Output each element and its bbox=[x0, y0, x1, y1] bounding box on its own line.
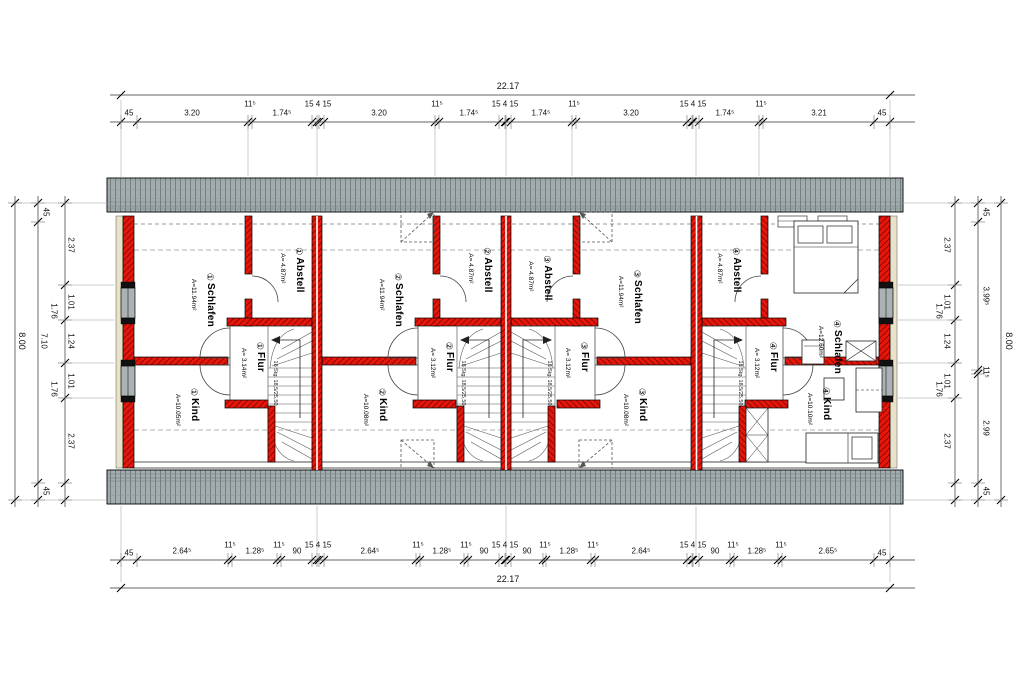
unit-number: ① bbox=[256, 342, 265, 350]
room-label-kind: ②KindA=10.08m² bbox=[359, 388, 387, 426]
room-name: Flur bbox=[579, 352, 589, 372]
dim-bottom-seg: 1.28⁵ bbox=[433, 547, 452, 556]
room-label-flur: ④FlurA= 3.12m² bbox=[750, 342, 778, 378]
room-area: A= 4.87m² bbox=[716, 253, 723, 283]
floor-plan-page: 453.2011⁵1.74⁵15 4 153.2011⁵1.74⁵15 4 15… bbox=[0, 0, 1024, 683]
room-label-schlafen: ①SchlafenA=11.94m² bbox=[187, 273, 215, 327]
dim-top-seg: 11⁵ bbox=[431, 100, 443, 109]
dim-left-inner: 1.24 bbox=[67, 333, 76, 349]
unit-number: ① bbox=[190, 388, 199, 396]
room-name: Kind bbox=[821, 397, 831, 420]
label-layer: 453.2011⁵1.74⁵15 4 153.2011⁵1.74⁵15 4 15… bbox=[0, 0, 1024, 683]
dim-right-chain: 45 bbox=[982, 208, 991, 217]
room-label-abstell: ③AbstellA= 4.87m² bbox=[524, 255, 552, 301]
dim-top-seg: 1.74⁵ bbox=[273, 109, 292, 118]
unit-number: ④ bbox=[769, 342, 778, 350]
unit-number: ④ bbox=[732, 247, 741, 255]
unit-number: ② bbox=[445, 342, 454, 350]
room-area: A=10.08m² bbox=[362, 394, 369, 426]
dim-top-seg: 15 4 15 bbox=[680, 100, 707, 109]
dim-top-seg: 15 4 15 bbox=[492, 100, 519, 109]
dim-top-seg: 1.74⁵ bbox=[532, 109, 551, 118]
dim-bottom-seg: 90 bbox=[293, 547, 302, 556]
room-label-schlafen: ③SchlafenA=11.94m² bbox=[614, 270, 642, 324]
dim-bottom-seg: 11⁵ bbox=[224, 541, 236, 550]
room-area: A= 3.12m² bbox=[753, 348, 760, 378]
dim-top-seg: 11⁵ bbox=[568, 100, 580, 109]
dim-right-inner: 2.37 bbox=[943, 237, 952, 253]
dim-bottom-seg: 11⁵ bbox=[460, 541, 472, 550]
dim-left-inner: 2.37 bbox=[67, 237, 76, 253]
dim-top-seg: 11⁵ bbox=[755, 100, 767, 109]
dim-right-offset: 1.76 bbox=[935, 381, 944, 397]
room-name: Schlafen bbox=[632, 280, 642, 324]
room-name: Schlafen bbox=[393, 283, 403, 327]
dim-bottom-seg: 1.28⁵ bbox=[748, 547, 767, 556]
dim-left-chain: 45 bbox=[42, 487, 51, 496]
dim-left-inner: 2.37 bbox=[67, 433, 76, 449]
room-name: Abstell bbox=[542, 265, 552, 300]
room-area: A=10.05m² bbox=[174, 394, 181, 426]
dim-left-offset: 1.76 bbox=[50, 381, 59, 397]
dim-right-inner: 1.01 bbox=[943, 294, 952, 310]
dim-bottom-seg: 1.28⁵ bbox=[246, 547, 265, 556]
dim-bottom-seg: 1.28⁵ bbox=[560, 547, 579, 556]
dim-top-seg: 15 4 15 bbox=[305, 100, 332, 109]
room-area: A=10.10m² bbox=[806, 393, 813, 425]
dim-left-inner: 1.01 bbox=[67, 373, 76, 389]
unit-number: ④ bbox=[822, 387, 831, 395]
dim-bottom-seg: 90 bbox=[711, 547, 720, 556]
dim-right-chain: 3.99⁵ bbox=[982, 287, 991, 306]
unit-number: ④ bbox=[833, 320, 842, 328]
dim-bottom-seg: 15 4 15 bbox=[492, 541, 519, 550]
room-name: Abstell bbox=[482, 257, 492, 292]
room-name: Kind bbox=[637, 398, 647, 421]
room-name: Flur bbox=[255, 352, 265, 372]
room-area: A= 4.87m² bbox=[467, 253, 474, 283]
room-label-kind: ①KindA=10.05m² bbox=[171, 388, 199, 426]
dim-right-chain: 45 bbox=[982, 487, 991, 496]
unit-number: ③ bbox=[633, 270, 642, 278]
dim-left-total: 8.00 bbox=[17, 332, 27, 350]
room-name: Abstell bbox=[294, 257, 304, 292]
room-name: Schlafen bbox=[832, 330, 842, 374]
room-name: Flur bbox=[444, 352, 454, 372]
dim-left-chain: 45 bbox=[42, 208, 51, 217]
dim-top-seg: 1.74⁵ bbox=[460, 109, 479, 118]
dim-right-chain: 2.99 bbox=[982, 420, 991, 436]
dim-right-chain: 11⁵ bbox=[982, 366, 991, 378]
unit-number: ③ bbox=[543, 255, 552, 263]
room-area: A= 3.14m² bbox=[240, 348, 247, 378]
unit-number: ② bbox=[483, 247, 492, 255]
room-area: A= 3.12m² bbox=[429, 348, 436, 378]
room-name: Kind bbox=[189, 398, 199, 421]
room-label-abstell: ①AbstellA= 4.87m² bbox=[276, 247, 304, 293]
dim-right-inner: 1.01 bbox=[943, 373, 952, 389]
room-label-schlafen: ④SchlafenA=12.60m² bbox=[814, 320, 842, 374]
dim-left-inner: 1.01 bbox=[67, 294, 76, 310]
unit-number: ① bbox=[295, 247, 304, 255]
dim-top-total: 22.17 bbox=[497, 81, 520, 91]
dim-right-total: 8.00 bbox=[1004, 332, 1014, 350]
dim-bottom-seg: 2.65⁵ bbox=[819, 547, 838, 556]
room-area: A= 4.87m² bbox=[279, 253, 286, 283]
room-area: A=10.08m² bbox=[622, 394, 629, 426]
room-area: A= 4.87m² bbox=[527, 261, 534, 291]
room-label-flur: ①FlurA= 3.14m² bbox=[237, 342, 265, 378]
dim-top-seg: 3.21 bbox=[811, 109, 827, 118]
room-label-flur: ③FlurA= 3.12m² bbox=[561, 342, 589, 378]
dim-bottom-seg: 2.64⁵ bbox=[361, 547, 380, 556]
dim-top-seg: 11⁵ bbox=[244, 100, 256, 109]
dim-bottom-seg: 15 4 15 bbox=[305, 541, 332, 550]
room-area: A=11.94m² bbox=[378, 279, 385, 311]
dim-top-seg: 3.20 bbox=[623, 109, 639, 118]
dim-bottom-seg: 11⁵ bbox=[412, 541, 424, 550]
stair-steps-label: 18 Stg. 18,5/25,50 bbox=[460, 361, 466, 406]
room-label-abstell: ②AbstellA= 4.87m² bbox=[464, 247, 492, 293]
dim-bottom-seg: 11⁵ bbox=[775, 541, 787, 550]
unit-number: ③ bbox=[638, 388, 647, 396]
room-area: A=12.60m² bbox=[817, 326, 824, 358]
dim-top-seg: 3.20 bbox=[371, 109, 387, 118]
room-area: A=11.94m² bbox=[190, 279, 197, 311]
room-label-flur: ②FlurA= 3.12m² bbox=[426, 342, 454, 378]
dim-top-seg: 45 bbox=[125, 109, 134, 118]
room-area: A= 3.12m² bbox=[564, 348, 571, 378]
dim-right-inner: 2.37 bbox=[943, 433, 952, 449]
dim-bottom-seg: 15 4 15 bbox=[680, 541, 707, 550]
dim-top-seg: 3.20 bbox=[184, 109, 200, 118]
unit-number: ① bbox=[206, 273, 215, 281]
dim-bottom-seg: 11⁵ bbox=[273, 541, 285, 550]
dim-bottom-seg: 11⁵ bbox=[727, 541, 739, 550]
dim-bottom-seg: 45 bbox=[878, 549, 887, 558]
room-area: A=11.94m² bbox=[617, 276, 624, 308]
room-label-kind: ④KindA=10.10m² bbox=[803, 387, 831, 425]
unit-number: ② bbox=[394, 273, 403, 281]
room-name: Flur bbox=[768, 352, 778, 372]
dim-left-offset: 1.76 bbox=[50, 303, 59, 319]
dim-top-seg: 1.74⁵ bbox=[716, 109, 735, 118]
dim-right-inner: 1.24 bbox=[943, 333, 952, 349]
dim-bottom-seg: 45 bbox=[125, 549, 134, 558]
dim-bottom-seg: 11⁵ bbox=[539, 541, 551, 550]
dim-bottom-seg: 90 bbox=[523, 547, 532, 556]
room-label-kind: ③KindA=10.08m² bbox=[619, 388, 647, 426]
room-label-abstell: ④AbstellA= 4.87m² bbox=[713, 247, 741, 293]
room-name: Kind bbox=[377, 398, 387, 421]
room-label-schlafen: ②SchlafenA=11.94m² bbox=[375, 273, 403, 327]
stair-steps-label: 18 Stg. 18,5/25,50 bbox=[737, 361, 743, 406]
stair-steps-label: 18 Stg. 18,5/25,50 bbox=[546, 361, 552, 406]
unit-number: ③ bbox=[580, 342, 589, 350]
dim-bottom-seg: 2.64⁵ bbox=[632, 547, 651, 556]
room-name: Schlafen bbox=[205, 283, 215, 327]
dim-bottom-seg: 11⁵ bbox=[587, 541, 599, 550]
unit-number: ② bbox=[378, 388, 387, 396]
dim-left-chain: 7.10 bbox=[40, 333, 49, 349]
dim-bottom-total: 22.17 bbox=[497, 574, 520, 584]
dim-top-seg: 45 bbox=[878, 109, 887, 118]
dim-bottom-seg: 90 bbox=[480, 547, 489, 556]
dim-bottom-seg: 2.64⁵ bbox=[173, 547, 192, 556]
room-name: Abstell bbox=[731, 257, 741, 292]
dim-right-offset: 1.76 bbox=[935, 303, 944, 319]
stair-steps-label: 18 Stg. 18,5/25,50 bbox=[272, 361, 278, 406]
